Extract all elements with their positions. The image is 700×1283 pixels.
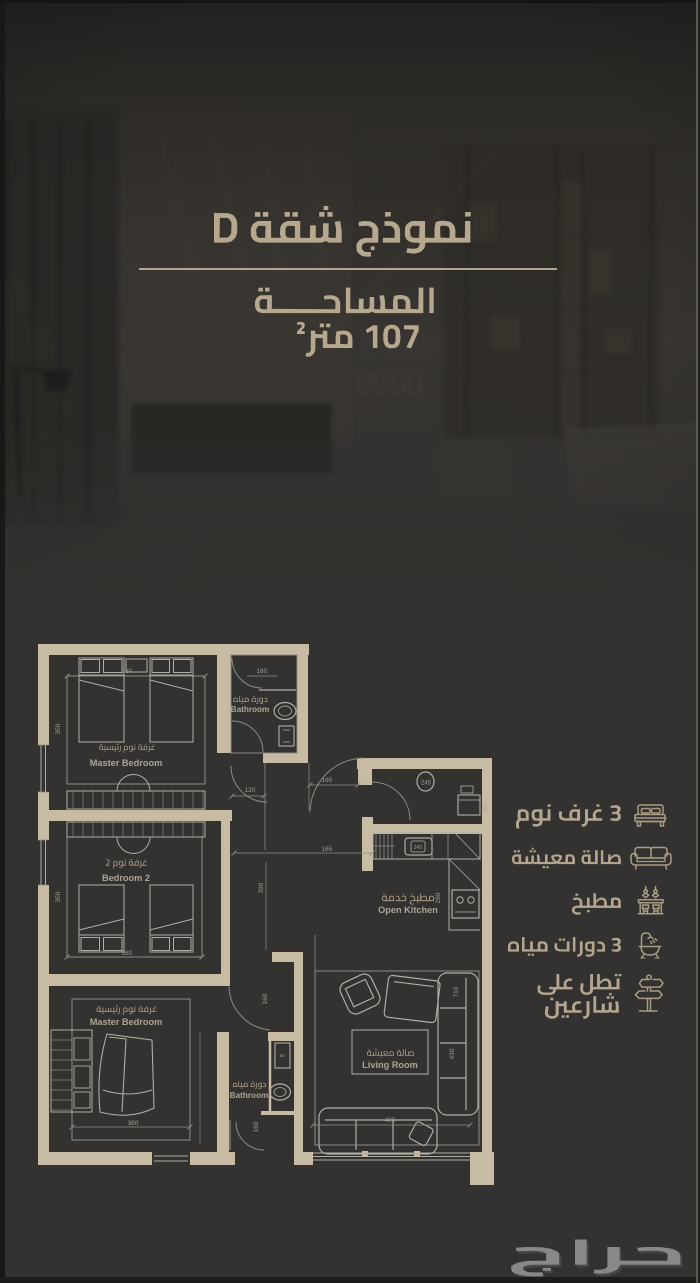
svg-text:430: 430 xyxy=(449,1048,456,1059)
svg-text:Open Kitchen: Open Kitchen xyxy=(378,905,438,915)
svg-text:160: 160 xyxy=(253,1121,260,1132)
svg-text:160: 160 xyxy=(262,993,269,1004)
svg-text:120: 120 xyxy=(245,787,256,794)
svg-text:390: 390 xyxy=(258,882,265,893)
svg-text:380: 380 xyxy=(122,950,133,957)
svg-text:280: 280 xyxy=(435,892,442,903)
svg-text:110: 110 xyxy=(483,804,489,813)
svg-text:350: 350 xyxy=(55,891,62,902)
svg-text:165: 165 xyxy=(322,777,333,784)
svg-text:Master Bedroom: Master Bedroom xyxy=(90,1017,163,1027)
svg-text:Living Room: Living Room xyxy=(362,1060,418,1070)
svg-text:160: 160 xyxy=(257,668,268,675)
svg-text:Bathroom: Bathroom xyxy=(230,1091,269,1100)
svg-text:710: 710 xyxy=(453,986,460,997)
svg-text:245: 245 xyxy=(414,845,423,851)
svg-text:380: 380 xyxy=(122,668,133,675)
svg-text:Bathroom: Bathroom xyxy=(231,705,270,714)
svg-text:Master Bedroom: Master Bedroom xyxy=(90,758,163,768)
svg-text:400: 400 xyxy=(385,1117,396,1124)
svg-text:165: 165 xyxy=(322,846,333,853)
svg-text:360: 360 xyxy=(128,1120,139,1127)
svg-text:Bedroom 2: Bedroom 2 xyxy=(102,873,150,883)
svg-text:60: 60 xyxy=(279,1053,285,1058)
svg-text:245: 245 xyxy=(421,781,432,787)
svg-text:350: 350 xyxy=(55,723,62,734)
